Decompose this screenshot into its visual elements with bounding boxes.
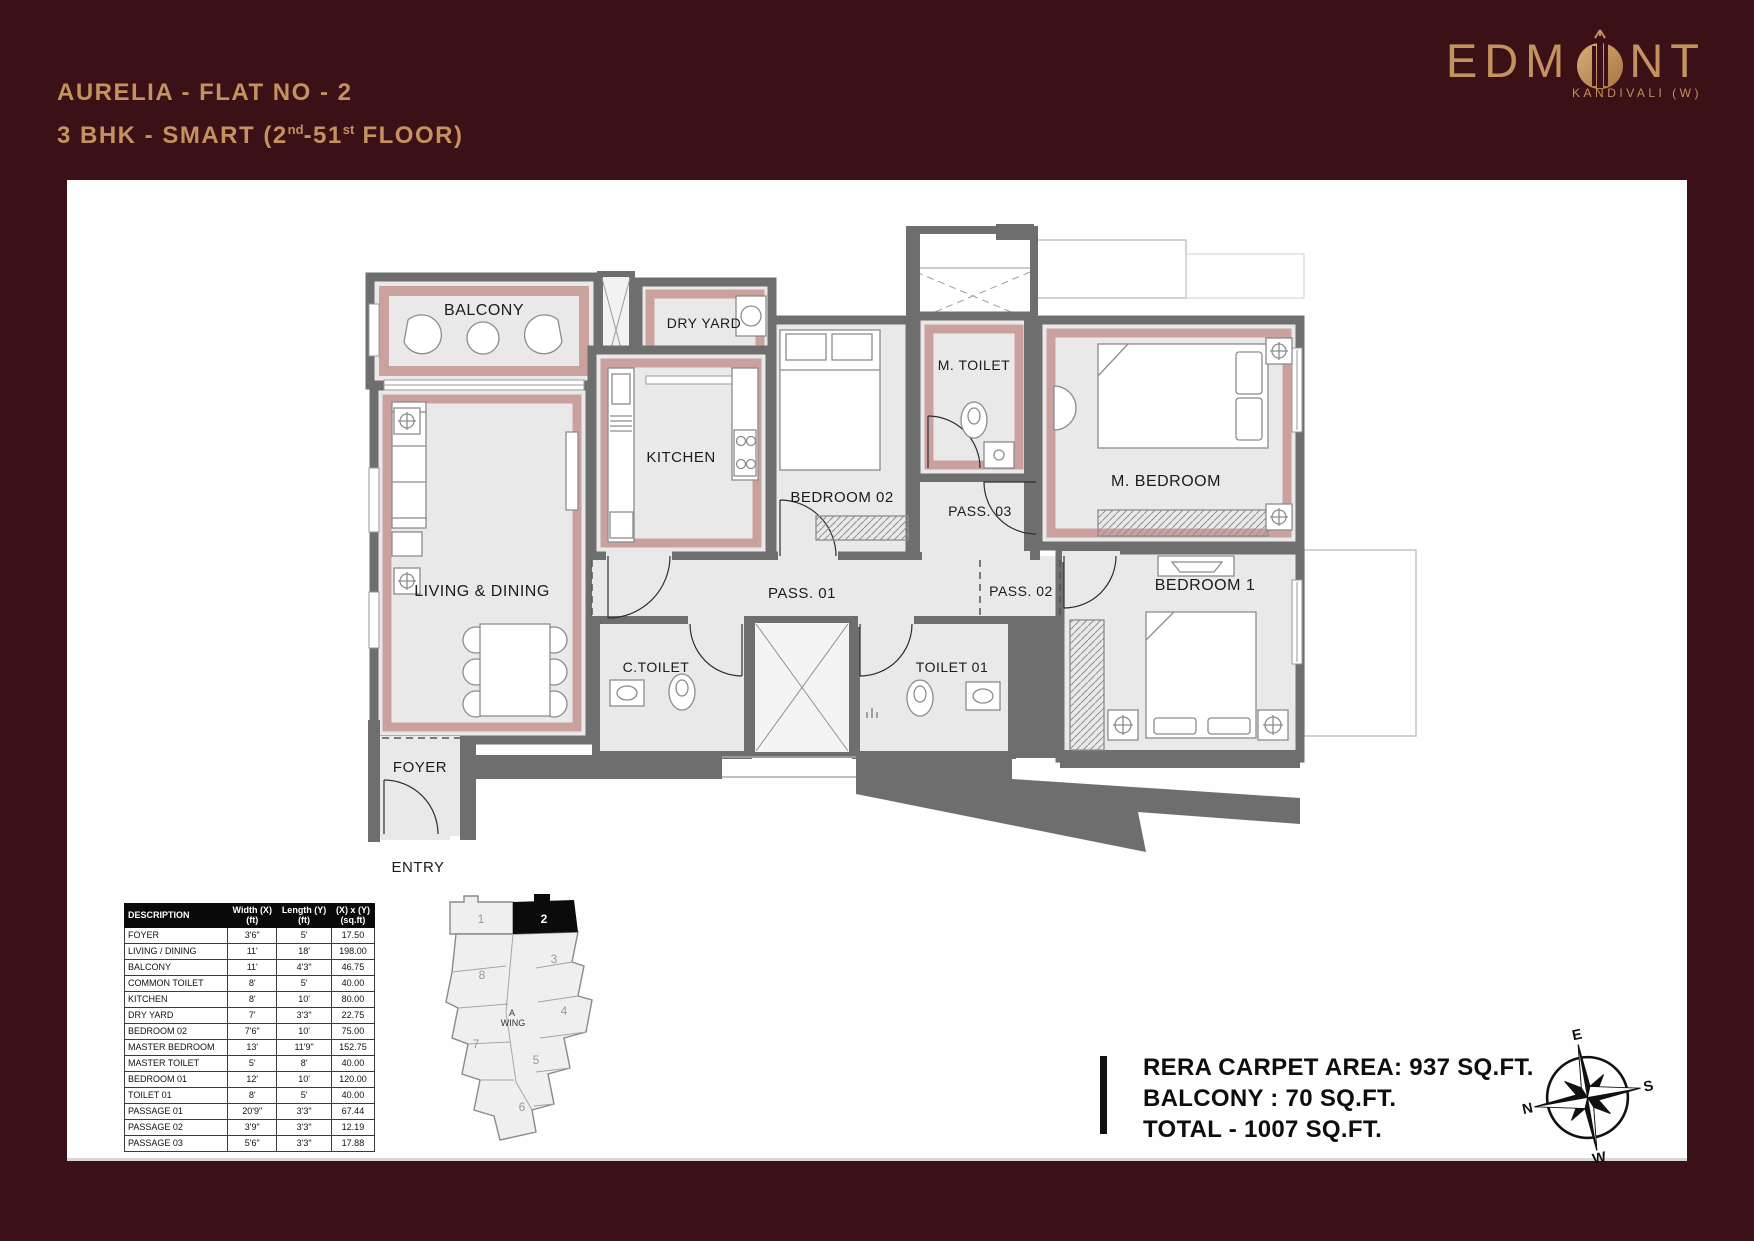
compass-w: W (1591, 1149, 1608, 1168)
cell-length: 10' (277, 1023, 332, 1039)
page-title: AURELIA - FLAT NO - 2 3 BHK - SMART (2nd… (57, 74, 463, 154)
flat-title-line1: AURELIA - FLAT NO - 2 (57, 74, 463, 111)
col-area: (X) x (Y)(sq.ft) (331, 904, 374, 928)
cell-area: 67.44 (331, 1103, 374, 1119)
label-m-toilet: M. TOILET (938, 357, 1010, 373)
rera-carpet-area: RERA CARPET AREA: 937 SQ.FT. (1143, 1052, 1534, 1083)
cell-description: PASSAGE 02 (125, 1119, 228, 1135)
cell-width: 5'6" (228, 1135, 277, 1151)
cell-width: 11' (228, 959, 277, 975)
keyplan-unit-5: 5 (533, 1053, 540, 1067)
brand-wordmark: EDM NT (1446, 28, 1706, 92)
label-pass02: PASS. 02 (989, 583, 1053, 599)
label-bedroom1: BEDROOM 1 (1155, 577, 1256, 594)
label-pass03: PASS. 03 (948, 503, 1012, 519)
tower-circle-icon (1573, 28, 1627, 92)
brand-part2: NT (1629, 33, 1706, 88)
table-row: MASTER BEDROOM 13' 11'9" 152.75 (125, 1039, 375, 1055)
cell-description: MASTER BEDROOM (125, 1039, 228, 1055)
cell-description: BEDROOM 01 (125, 1071, 228, 1087)
room-foyer (376, 736, 466, 836)
duct-shaft-2 (912, 230, 1034, 322)
cell-area: 40.00 (331, 1055, 374, 1071)
cell-length: 3'3" (277, 1103, 332, 1119)
cell-area: 75.00 (331, 1023, 374, 1039)
cell-width: 8' (228, 1087, 277, 1103)
cell-description: PASSAGE 03 (125, 1135, 228, 1151)
table-row: TOILET 01 8' 5' 40.00 (125, 1087, 375, 1103)
keyplan-unit-1: 1 (478, 912, 485, 926)
area-summary: RERA CARPET AREA: 937 SQ.FT. BALCONY : 7… (1100, 1052, 1534, 1145)
cell-width: 8' (228, 991, 277, 1007)
cell-length: 5' (277, 975, 332, 991)
keyplan-unit-7: 7 (473, 1037, 480, 1051)
cell-description: FOYER (125, 927, 228, 943)
keyplan-unit-4: 4 (561, 1004, 568, 1018)
cell-length: 10' (277, 1071, 332, 1087)
cell-area: 40.00 (331, 1087, 374, 1103)
keyplan-unit-6: 6 (519, 1100, 526, 1114)
angled-exterior-wall (856, 779, 1300, 852)
label-toilet01: TOILET 01 (916, 659, 988, 675)
cell-width: 3'6" (228, 927, 277, 943)
label-living-dining: LIVING & DINING (414, 583, 550, 600)
cell-description: BALCONY (125, 959, 228, 975)
floor-plan: BALCONY DRY YARD KITCHEN BEDROOM 02 M. T… (360, 220, 1430, 920)
label-bedroom02: BEDROOM 02 (790, 489, 893, 506)
cell-width: 8' (228, 975, 277, 991)
balcony-area: BALCONY : 70 SQ.FT. (1143, 1083, 1534, 1114)
key-plan: 1 2 3 4 5 6 7 8 A WING (436, 892, 601, 1142)
total-area: TOTAL - 1007 SQ.FT. (1143, 1114, 1534, 1145)
cell-description: DRY YARD (125, 1007, 228, 1023)
table-row: PASSAGE 03 5'6" 3'3" 17.88 (125, 1135, 375, 1151)
cell-area: 17.50 (331, 927, 374, 943)
compass-s: S (1642, 1078, 1655, 1096)
table-row: KITCHEN 8' 10' 80.00 (125, 991, 375, 1007)
table-row: MASTER TOILET 5' 8' 40.00 (125, 1055, 375, 1071)
cell-area: 46.75 (331, 959, 374, 975)
cell-width: 12' (228, 1071, 277, 1087)
table-row: FOYER 3'6" 5' 17.50 (125, 927, 375, 943)
brand-logo: EDM NT KANDIVALI (W) (1446, 28, 1706, 100)
cell-length: 18' (277, 943, 332, 959)
table-row: LIVING / DINING 11' 18' 198.00 (125, 943, 375, 959)
table-row: BALCONY 11' 4'3" 46.75 (125, 959, 375, 975)
col-length: Length (Y)(ft) (277, 904, 332, 928)
bedroom02-bed-icon (780, 330, 880, 470)
area-summary-bar (1100, 1056, 1107, 1134)
cell-length: 3'3" (277, 1135, 332, 1151)
keyplan-unit-2: 2 (541, 912, 548, 926)
col-width: Width (X)(ft) (228, 904, 277, 928)
label-foyer: FOYER (393, 759, 447, 776)
content-card: BALCONY DRY YARD KITCHEN BEDROOM 02 M. T… (67, 180, 1687, 1158)
label-kitchen: KITCHEN (646, 449, 715, 466)
m-bedroom-wardrobe-icon (1098, 510, 1268, 536)
cell-description: COMMON TOILET (125, 975, 228, 991)
cell-description: MASTER TOILET (125, 1055, 228, 1071)
cell-area: 198.00 (331, 943, 374, 959)
compass-e: E (1571, 1027, 1584, 1045)
table-row: BEDROOM 01 12' 10' 120.00 (125, 1071, 375, 1087)
cell-width: 7'6" (228, 1023, 277, 1039)
table-row: DRY YARD 7' 3'3" 22.75 (125, 1007, 375, 1023)
bedroom02-wardrobe-icon (816, 516, 908, 540)
cell-description: LIVING / DINING (125, 943, 228, 959)
cell-length: 3'3" (277, 1007, 332, 1023)
bedroom1-wardrobe-icon (1070, 620, 1104, 750)
cell-length: 4'3" (277, 959, 332, 975)
cell-area: 152.75 (331, 1039, 374, 1055)
cell-width: 13' (228, 1039, 277, 1055)
bottom-walls (460, 750, 1300, 852)
cell-area: 40.00 (331, 975, 374, 991)
cell-description: TOILET 01 (125, 1087, 228, 1103)
cell-length: 5' (277, 927, 332, 943)
cell-length: 11'9" (277, 1039, 332, 1055)
label-c-toilet: C.TOILET (623, 659, 690, 675)
cell-description: KITCHEN (125, 991, 228, 1007)
cell-width: 7' (228, 1007, 277, 1023)
room-pass03 (916, 482, 1032, 557)
keyplan-unit-8: 8 (479, 968, 486, 982)
compass-rose-icon: E S W N (1515, 1025, 1660, 1170)
label-dry-yard: DRY YARD (667, 315, 742, 331)
compass-n: N (1521, 1100, 1535, 1118)
cell-length: 3'3" (277, 1119, 332, 1135)
cell-area: 80.00 (331, 991, 374, 1007)
label-m-bedroom: M. BEDROOM (1111, 473, 1221, 490)
table-row: COMMON TOILET 8' 5' 40.00 (125, 975, 375, 991)
flat-title-line2: 3 BHK - SMART (2nd-51st FLOOR) (57, 111, 463, 154)
dining-table-icon (463, 624, 567, 717)
label-balcony: BALCONY (444, 302, 524, 319)
cell-length: 10' (277, 991, 332, 1007)
cell-description: PASSAGE 01 (125, 1103, 228, 1119)
cell-width: 5' (228, 1055, 277, 1071)
brand-part1: EDM (1446, 33, 1571, 88)
label-pass01: PASS. 01 (768, 585, 836, 602)
table-row: PASSAGE 01 20'9" 3'3" 67.44 (125, 1103, 375, 1119)
keyplan-unit-3: 3 (551, 952, 558, 966)
label-entry: ENTRY (391, 859, 444, 876)
cell-area: 22.75 (331, 1007, 374, 1023)
table-row: BEDROOM 02 7'6" 10' 75.00 (125, 1023, 375, 1039)
dimensions-table: DESCRIPTION Width (X)(ft) Length (Y)(ft)… (124, 903, 375, 1152)
cell-width: 11' (228, 943, 277, 959)
cell-area: 12.19 (331, 1119, 374, 1135)
col-description: DESCRIPTION (125, 904, 228, 928)
cell-description: BEDROOM 02 (125, 1023, 228, 1039)
cell-area: 17.88 (331, 1135, 374, 1151)
cell-area: 120.00 (331, 1071, 374, 1087)
table-row: PASSAGE 02 3'9" 3'3" 12.19 (125, 1119, 375, 1135)
cell-width: 20'9" (228, 1103, 277, 1119)
cell-width: 3'9" (228, 1119, 277, 1135)
brand-location: KANDIVALI (W) (1446, 86, 1706, 100)
cell-length: 8' (277, 1055, 332, 1071)
cell-length: 5' (277, 1087, 332, 1103)
